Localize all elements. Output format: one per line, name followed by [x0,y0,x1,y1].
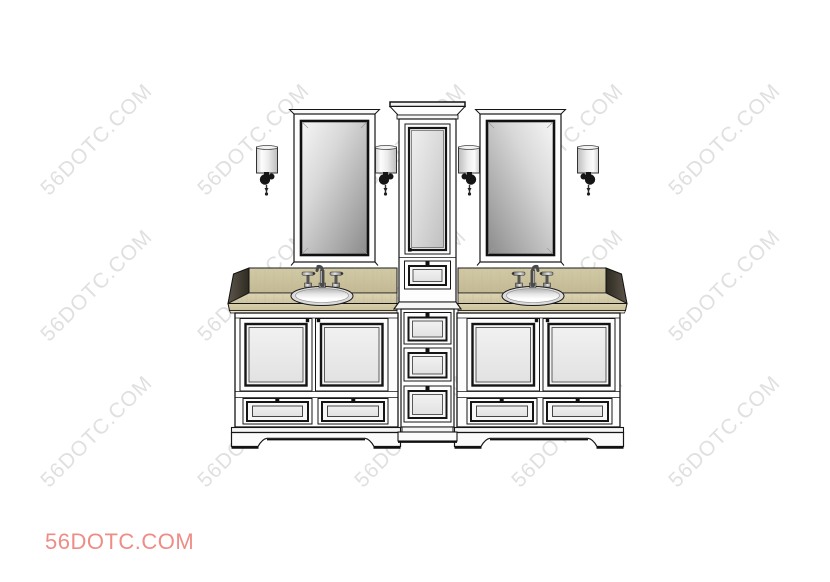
tower-base [398,427,457,442]
drawer-panel [413,270,442,282]
sconce-bracket [260,172,275,196]
base-molding [232,428,401,433]
brand-watermark-text: 56DOTC.COM [45,531,194,553]
crown-top-board [390,102,465,107]
cabinet-door [240,319,312,392]
faucet-handle-tip [313,272,316,275]
cabinet-base [232,428,401,448]
center-tower-cabinet [390,102,465,442]
door-panel [249,328,303,383]
vanity-illustration [0,0,830,582]
cabinet-drawer [318,399,388,425]
sink-cabinet [232,313,401,448]
tower-door [405,124,450,254]
vanity-left-unit [228,110,401,448]
door-panel [325,328,380,383]
drawer-panel [413,321,443,337]
sconce-shade-top [376,146,397,150]
drawer-panel [413,395,443,415]
drawer-knob [351,399,355,403]
door-knob [408,248,412,252]
mirror [290,110,380,266]
door-mirror-panel [412,131,444,248]
faucet-handle-post [307,275,310,284]
drawer-panel [328,406,379,417]
vanity-right-unit [455,110,628,448]
faucet-handle-post [335,275,338,284]
drawer-knob [426,313,430,317]
mirror-glass [301,121,368,255]
tower-upper-drawer [405,261,451,289]
mirror-top-edge [290,110,380,115]
drawer-panel [253,406,303,417]
sink [291,287,353,306]
door-knob [306,319,309,322]
tower-counter-step [394,302,461,309]
sink-bowl [296,289,349,303]
wall-sconce-inner [376,146,397,196]
faucet-handle-tip [341,272,344,275]
cabinet-drawer [243,399,312,425]
sconce-bracket [379,172,394,196]
sconce-shade [376,147,397,173]
tower-crown [390,102,465,119]
sconce-shade-top [257,146,278,150]
drawer-knob [275,399,279,403]
door-knob [317,319,320,322]
tower-drawer [404,313,451,345]
faucet-handle-cross [302,272,314,275]
drawer-knob [426,262,430,266]
cabinet-door [316,319,389,392]
base-block [398,432,457,441]
base-molding [402,427,453,432]
drawer-knob [426,387,430,391]
drawer-knob [426,349,430,353]
tower-drawer [404,386,451,422]
sconce-shade [257,147,278,173]
wall-sconce-outer [257,146,278,196]
tower-drawer [404,348,451,381]
drawer-panel [413,357,443,375]
crown-fascia [390,107,465,116]
product-render-canvas: 56DOTC.COM56DOTC.COM56DOTC.COM56DOTC.COM… [0,0,830,582]
faucet-handle-cross [330,272,342,275]
